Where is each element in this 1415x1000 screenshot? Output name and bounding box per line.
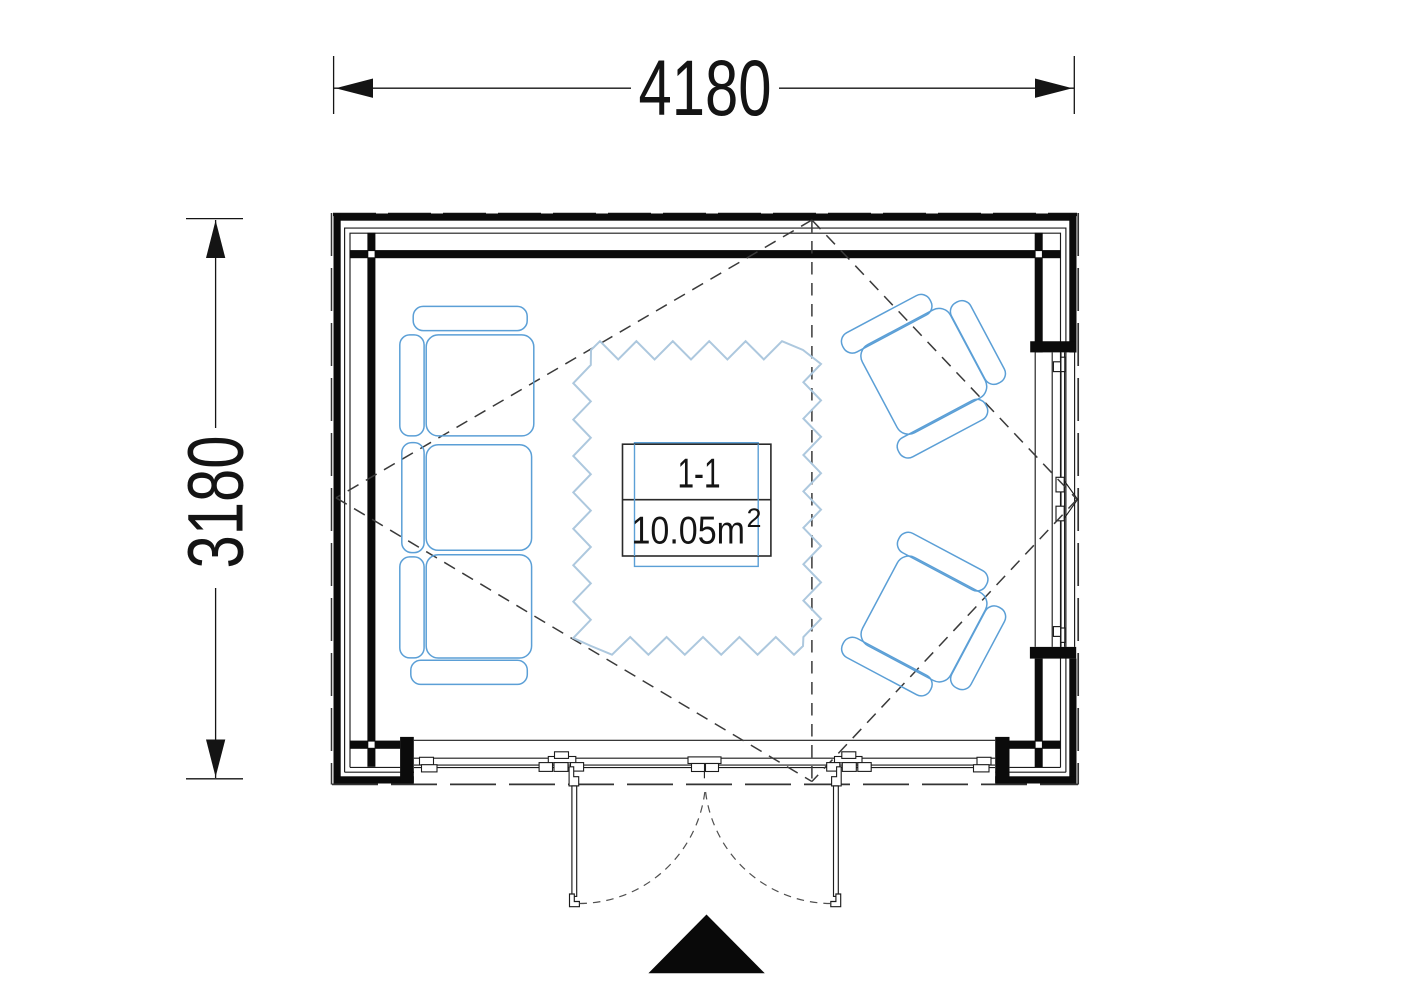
svg-text:1-1: 1-1 [678,449,721,496]
svg-text:4180: 4180 [639,43,772,132]
svg-text:2: 2 [747,503,762,533]
svg-text:3180: 3180 [171,436,260,569]
svg-text:10.05m: 10.05m [632,509,746,552]
